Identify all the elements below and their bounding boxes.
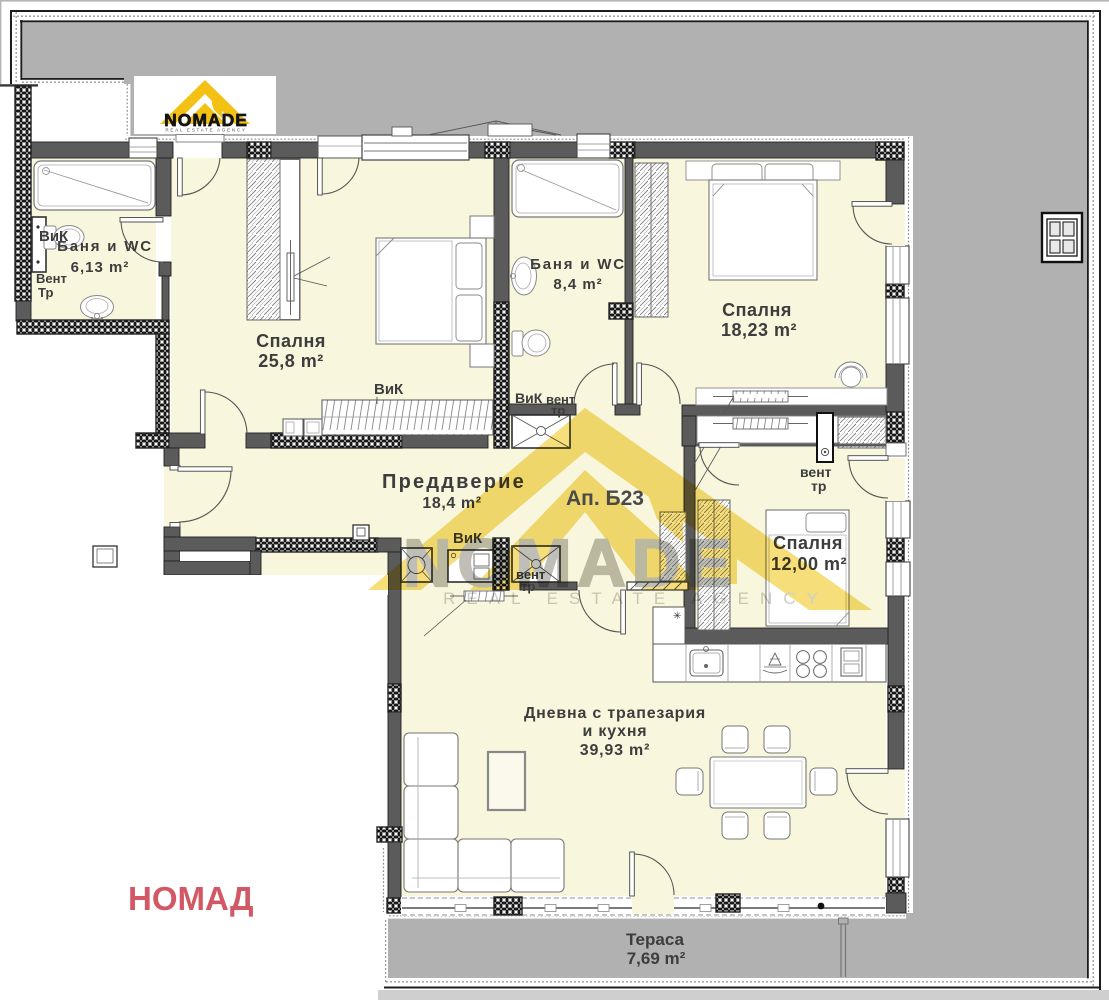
svg-text:18,23 m²: 18,23 m² — [721, 320, 797, 340]
svg-text:Ап. Б23: Ап. Б23 — [566, 487, 644, 510]
svg-text:25,8 m²: 25,8 m² — [258, 351, 324, 371]
svg-text:Вент: Вент — [36, 271, 67, 286]
svg-text:39,93 m²: 39,93 m² — [580, 742, 650, 759]
svg-text:Баня и WC: Баня и WC — [57, 238, 153, 255]
svg-text:ВиК: ВиК — [374, 381, 404, 398]
svg-text:8,4 m²: 8,4 m² — [553, 276, 602, 293]
svg-text:✳: ✳ — [673, 611, 681, 622]
svg-text:Спалня: Спалня — [256, 331, 326, 351]
svg-text:6,13 m²: 6,13 m² — [71, 259, 130, 276]
svg-text:Тераса: Тераса — [626, 930, 684, 949]
svg-text:7,69 m²: 7,69 m² — [627, 949, 686, 968]
svg-text:Тр: Тр — [38, 285, 53, 300]
svg-text:Баня и WC: Баня и WC — [530, 256, 626, 273]
svg-text:тр: тр — [551, 403, 565, 418]
svg-text:и кухня: и кухня — [583, 723, 648, 740]
svg-text:НОМАД: НОМАД — [128, 880, 254, 917]
svg-text:Спалня: Спалня — [722, 300, 792, 320]
svg-text:REAL ESTATE AGENCY: REAL ESTATE AGENCY — [443, 589, 829, 608]
svg-text:тр: тр — [811, 478, 826, 494]
svg-text:REAL ESTATE AGENCY: REAL ESTATE AGENCY — [165, 128, 246, 133]
svg-text:ВиК: ВиК — [515, 390, 543, 406]
svg-text:Дневна с трапезария: Дневна с трапезария — [524, 705, 706, 722]
